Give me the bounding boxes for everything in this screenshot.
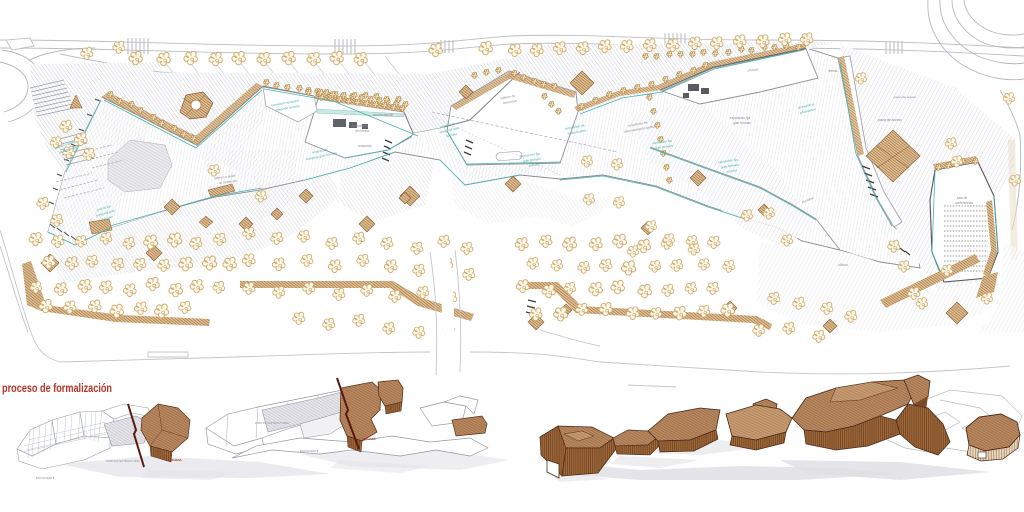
svg-text:administración: administración	[373, 113, 394, 117]
svg-text:plaza de acceso: plaza de acceso	[878, 118, 903, 122]
svg-text:ENVOLVENTE: ENVOLVENTE	[36, 476, 55, 480]
svg-text:PORTICO ESTRUCTURAL: PORTICO ESTRUCTURAL	[255, 421, 290, 425]
svg-text:ENVOLVENTE: ENVOLVENTE	[300, 449, 319, 453]
svg-text:de novela: de novela	[355, 129, 369, 133]
svg-text:oficina: oficina	[838, 263, 847, 267]
svg-text:paseo de acceso: paseo de acceso	[894, 95, 917, 99]
svg-text:conferencias: conferencias	[955, 201, 973, 205]
svg-text:gran formato: gran formato	[733, 121, 751, 125]
svg-text:exposición fija: exposición fija	[730, 116, 750, 120]
svg-text:sala de: sala de	[957, 196, 968, 200]
svg-text:tienda: tienda	[829, 69, 838, 73]
svg-text:proceso de formalización: proceso de formalización	[2, 381, 112, 395]
svg-text:exposición: exposición	[352, 124, 367, 128]
svg-text:recepción: recepción	[358, 144, 372, 148]
svg-text:PORTICO ESTRUCTURAL: PORTICO ESTRUCTURAL	[106, 459, 141, 463]
svg-text:FACHADA: FACHADA	[168, 458, 182, 462]
svg-text:FACHADA: FACHADA	[362, 437, 376, 441]
